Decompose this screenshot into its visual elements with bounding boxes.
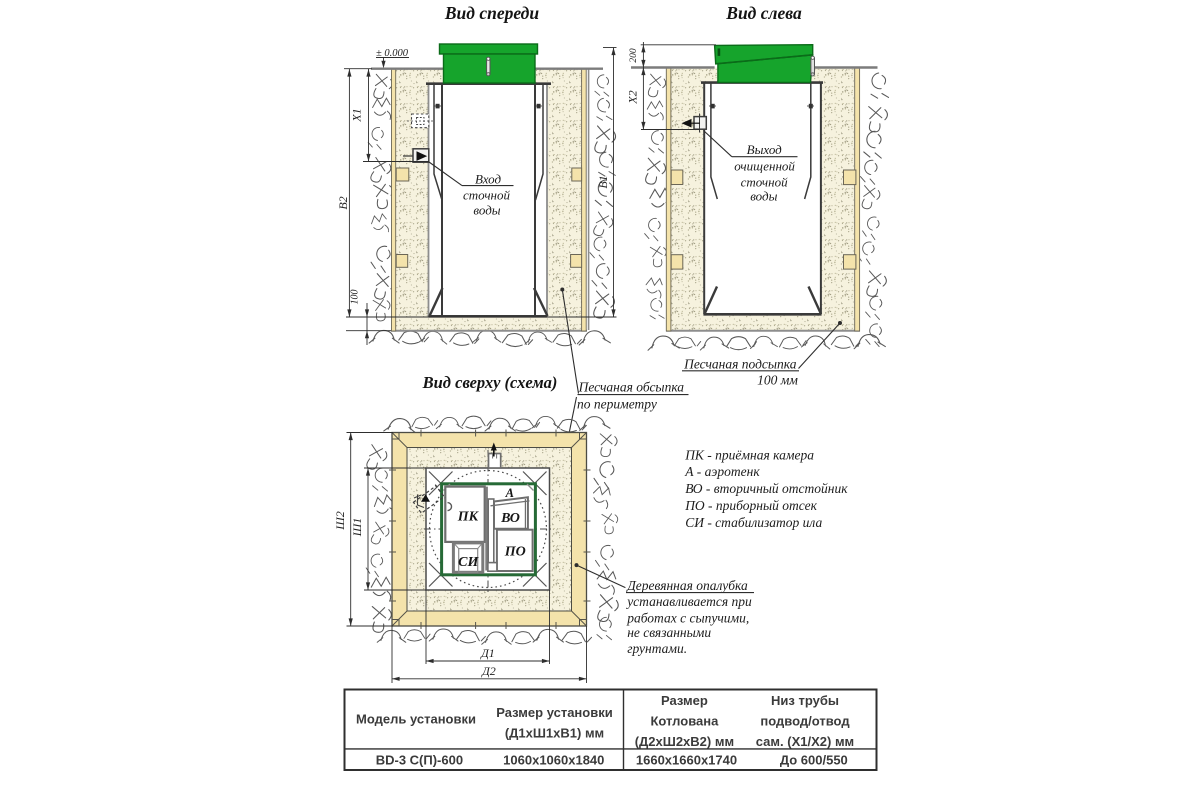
svg-text:воды: воды [473,203,500,218]
svg-text:Модель установки: Модель установки [356,712,476,727]
svg-text:X1: X1 [350,108,364,122]
svg-text:X2: X2 [626,90,640,104]
svg-text:не связанными: не связанными [627,625,711,640]
svg-text:очищенной: очищенной [734,159,795,174]
svg-text:В1: В1 [596,175,610,188]
svg-text:устанавливается при: устанавливается при [625,594,752,609]
svg-text:100 мм: 100 мм [757,372,798,387]
svg-text:В2: В2 [336,196,350,209]
svg-text:ВО - вторичный отстойник: ВО - вторичный отстойник [685,481,848,496]
svg-text:грунтами.: грунтами. [627,641,687,656]
svg-text:Д1: Д1 [480,646,495,660]
svg-text:Выход: Выход [747,142,783,157]
svg-text:Вид сверху (схема): Вид сверху (схема) [422,373,558,392]
svg-text:(Д1хШ1хВ1) мм: (Д1хШ1хВ1) мм [505,725,604,740]
svg-text:Вход: Вход [475,171,502,186]
svg-text:подвод/отвод: подвод/отвод [760,713,850,728]
svg-text:Песчаная обсыпка: Песчаная обсыпка [578,380,685,395]
svg-text:по периметру: по периметру [577,397,657,412]
svg-text:ВО: ВО [500,511,520,526]
svg-text:Размер установки: Размер установки [496,705,612,720]
svg-text:Ш2: Ш2 [333,511,347,531]
svg-text:1060х1060х1840: 1060х1060х1840 [503,753,604,768]
svg-text:ПО - приборный отсек: ПО - приборный отсек [684,498,817,513]
svg-text:ПК - приёмная камера: ПК - приёмная камера [684,447,814,462]
svg-text:Д2: Д2 [481,664,496,678]
svg-text:ПО: ПО [504,545,526,560]
svg-text:Ш1: Ш1 [350,518,364,538]
svg-text:(Д2хШ2хВ2) мм: (Д2хШ2хВ2) мм [635,734,734,749]
svg-text:СИ: СИ [458,555,479,570]
svg-text:Деревянная опалубка: Деревянная опалубка [625,578,748,593]
svg-text:Размер: Размер [661,693,708,708]
svg-text:100: 100 [350,290,361,305]
svg-text:Песчаная подсыпка: Песчаная подсыпка [683,356,797,371]
svg-text:Котлована: Котлована [650,713,719,728]
svg-text:1660х1660х1740: 1660х1660х1740 [636,753,737,768]
svg-text:А: А [505,486,514,500]
svg-text:Низ трубы: Низ трубы [771,693,839,708]
svg-text:Вид спереди: Вид спереди [444,3,539,23]
svg-text:Вид слева: Вид слева [725,3,802,23]
svg-text:200: 200 [629,48,639,63]
svg-text:сточной: сточной [463,188,510,203]
svg-text:сам. (Х1/Х2) мм: сам. (Х1/Х2) мм [756,734,854,749]
svg-text:СИ - стабилизатор ила: СИ - стабилизатор ила [685,515,822,530]
svg-text:ПК: ПК [457,510,480,525]
svg-text:А - аэротенк: А - аэротенк [684,464,760,479]
svg-text:До 600/550: До 600/550 [780,753,848,768]
svg-text:сточной: сточной [741,175,788,190]
svg-text:воды: воды [750,188,777,203]
svg-text:BD-3 С(П)-600: BD-3 С(П)-600 [376,753,463,768]
svg-text:работах с сыпучими,: работах с сыпучими, [626,611,749,626]
